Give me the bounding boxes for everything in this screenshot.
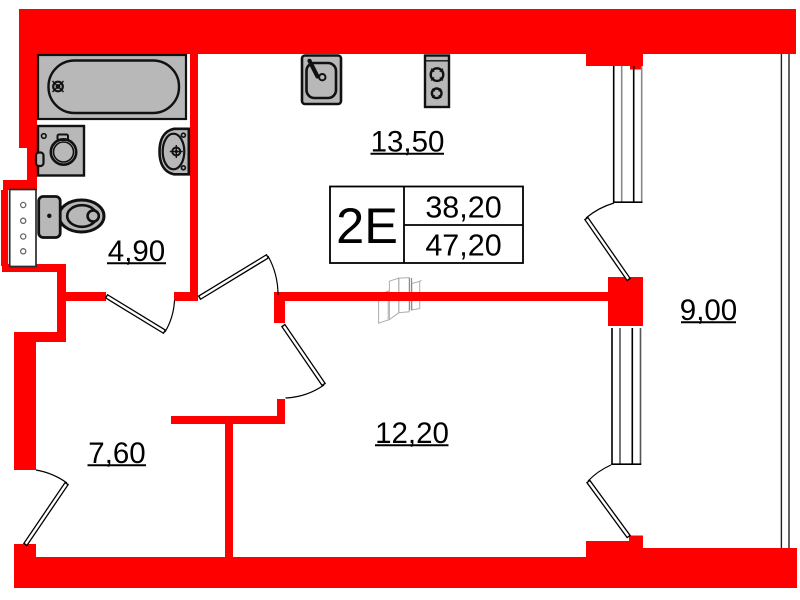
svg-text:47,20: 47,20	[425, 229, 501, 263]
svg-text:38,20: 38,20	[425, 191, 501, 225]
svg-text:2E: 2E	[336, 197, 398, 254]
